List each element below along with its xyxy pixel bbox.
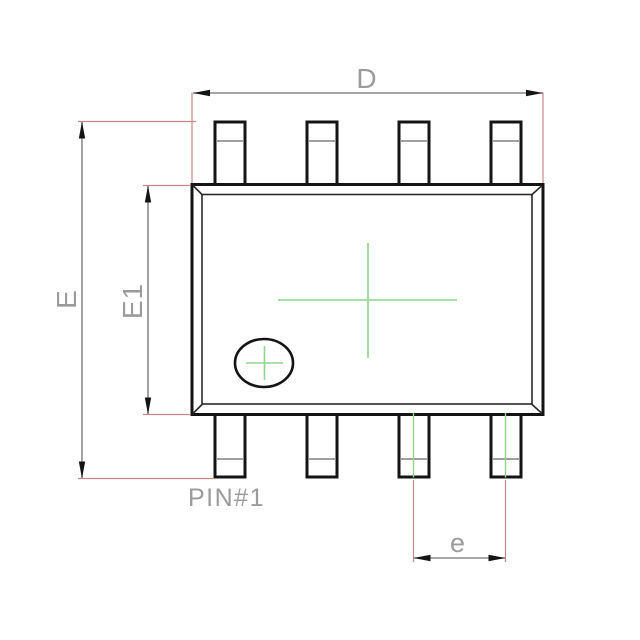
package-outline-drawing: D E E1 e PIN#1 — [0, 0, 640, 640]
label-d: D — [356, 63, 377, 94]
dimension-e: E — [51, 122, 85, 479]
arrow-d-left — [193, 90, 210, 96]
pin-top-1 — [215, 122, 245, 188]
arrow-e1-top — [145, 186, 151, 203]
pin-top-4 — [491, 122, 521, 188]
dimension-d: D — [193, 63, 543, 96]
arrow-pitch-left — [414, 555, 431, 561]
dimension-e1: E1 — [117, 186, 151, 415]
pin-bottom-1 — [215, 408, 245, 477]
arrow-d-right — [526, 90, 543, 96]
label-e: E — [51, 289, 82, 309]
label-pin1: PIN#1 — [188, 484, 265, 512]
pin-top-2 — [307, 122, 337, 188]
bottom-pins — [215, 408, 521, 477]
pin-top-3 — [399, 122, 429, 188]
top-pins — [215, 122, 521, 188]
arrow-e-bottom — [79, 462, 85, 479]
arrow-pitch-right — [489, 555, 506, 561]
pin-bottom-2 — [307, 408, 337, 477]
label-pitch: e — [450, 528, 466, 558]
arrow-e-top — [79, 122, 85, 139]
dimension-pitch: e — [414, 528, 506, 561]
arrow-e1-bottom — [145, 398, 151, 415]
label-e1: E1 — [117, 283, 148, 319]
